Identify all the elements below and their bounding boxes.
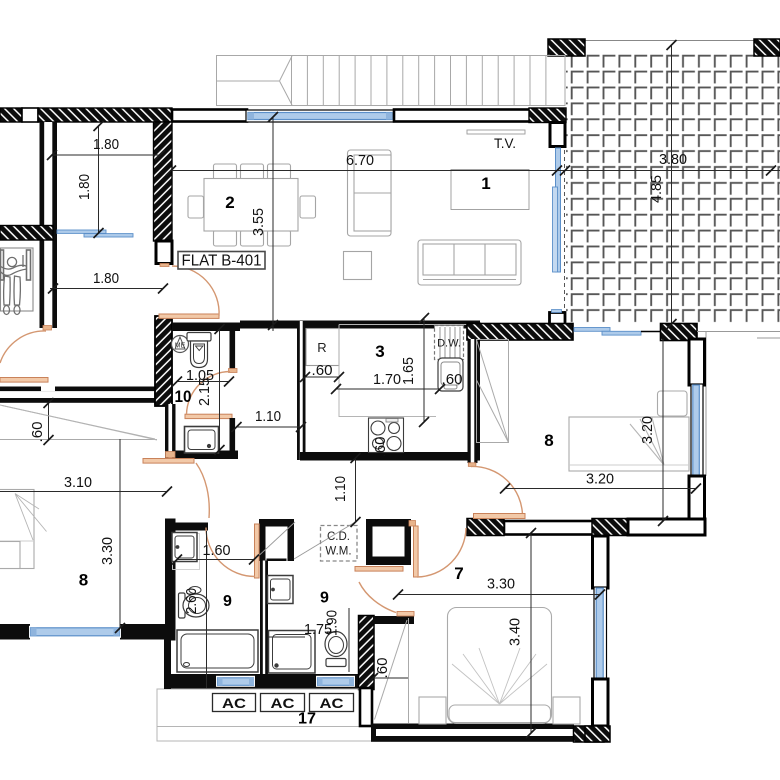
svg-text:2.60: 2.60 <box>183 588 200 614</box>
svg-text:AC: AC <box>320 695 344 711</box>
svg-text:T.V.: T.V. <box>494 136 516 151</box>
svg-text:1.60: 1.60 <box>203 542 231 559</box>
svg-text:.60: .60 <box>374 658 391 679</box>
svg-text:4.85: 4.85 <box>648 175 665 203</box>
svg-text:.60: .60 <box>372 437 389 458</box>
svg-text:.60: .60 <box>312 362 333 379</box>
svg-text:1: 1 <box>481 174 490 193</box>
svg-text:FLAT B-401: FLAT B-401 <box>182 253 262 270</box>
svg-text:3.40: 3.40 <box>507 618 524 646</box>
svg-text:.60: .60 <box>29 422 46 443</box>
svg-text:1.65: 1.65 <box>400 357 417 385</box>
svg-text:1.90: 1.90 <box>324 610 341 636</box>
svg-text:9: 9 <box>320 590 329 607</box>
svg-text:2.15: 2.15 <box>196 378 213 406</box>
svg-text:10: 10 <box>175 387 192 406</box>
svg-text:6.70: 6.70 <box>346 152 374 169</box>
svg-text:1.80: 1.80 <box>93 136 119 153</box>
svg-text:2: 2 <box>225 193 234 212</box>
svg-text:1.10: 1.10 <box>255 408 281 425</box>
svg-text:1.80: 1.80 <box>76 174 93 200</box>
svg-text:AC: AC <box>271 695 295 711</box>
svg-text:3.20: 3.20 <box>639 416 656 444</box>
svg-text:D.W.: D.W. <box>437 338 461 350</box>
svg-text:R: R <box>317 340 326 355</box>
svg-text:3.55: 3.55 <box>250 208 267 236</box>
svg-text:9: 9 <box>223 593 232 610</box>
svg-text:.60: .60 <box>442 371 463 388</box>
svg-text:ME: ME <box>175 343 186 350</box>
svg-text:3.20: 3.20 <box>586 471 614 488</box>
svg-text:1.80: 1.80 <box>93 270 119 287</box>
svg-text:AC: AC <box>222 695 246 711</box>
svg-text:8: 8 <box>79 571 88 590</box>
svg-text:8: 8 <box>544 431 553 450</box>
svg-text:3.80: 3.80 <box>659 151 687 168</box>
svg-text:7: 7 <box>454 564 463 583</box>
svg-text:1.10: 1.10 <box>332 476 349 502</box>
svg-text:3.30: 3.30 <box>487 576 515 593</box>
svg-text:3.10: 3.10 <box>64 474 92 491</box>
svg-text:3.30: 3.30 <box>99 537 116 565</box>
svg-text:3: 3 <box>375 342 384 361</box>
svg-text:17: 17 <box>298 711 316 728</box>
svg-text:1.70: 1.70 <box>373 371 401 388</box>
svg-text:W.M.: W.M. <box>325 546 351 558</box>
